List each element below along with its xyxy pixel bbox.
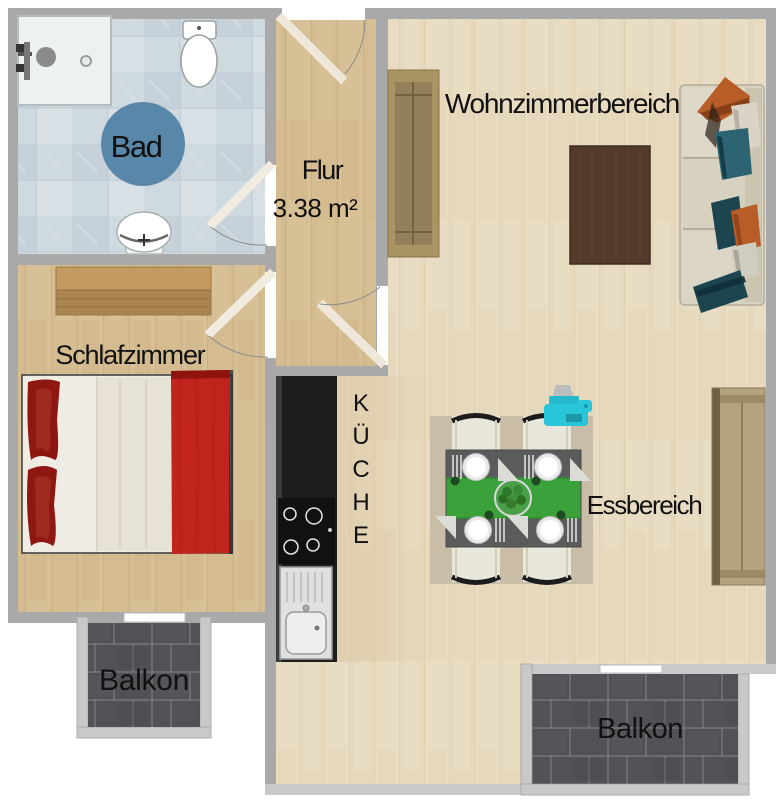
svg-text:Wohnzimmerbereich: Wohnzimmerbereich xyxy=(445,88,679,119)
svg-text:C: C xyxy=(352,456,369,483)
svg-text:3.38 m²: 3.38 m² xyxy=(273,193,358,223)
svg-text:Essbereich: Essbereich xyxy=(587,490,702,520)
svg-text:Flur: Flur xyxy=(302,155,344,185)
svg-text:Bad: Bad xyxy=(111,129,162,164)
svg-text:K: K xyxy=(353,390,369,417)
svg-text:Balkon: Balkon xyxy=(597,713,683,745)
svg-text:Ü: Ü xyxy=(352,423,369,450)
svg-text:E: E xyxy=(353,522,369,549)
svg-text:H: H xyxy=(352,489,369,516)
svg-text:Schlafzimmer: Schlafzimmer xyxy=(55,340,205,370)
svg-text:Balkon: Balkon xyxy=(99,664,189,697)
